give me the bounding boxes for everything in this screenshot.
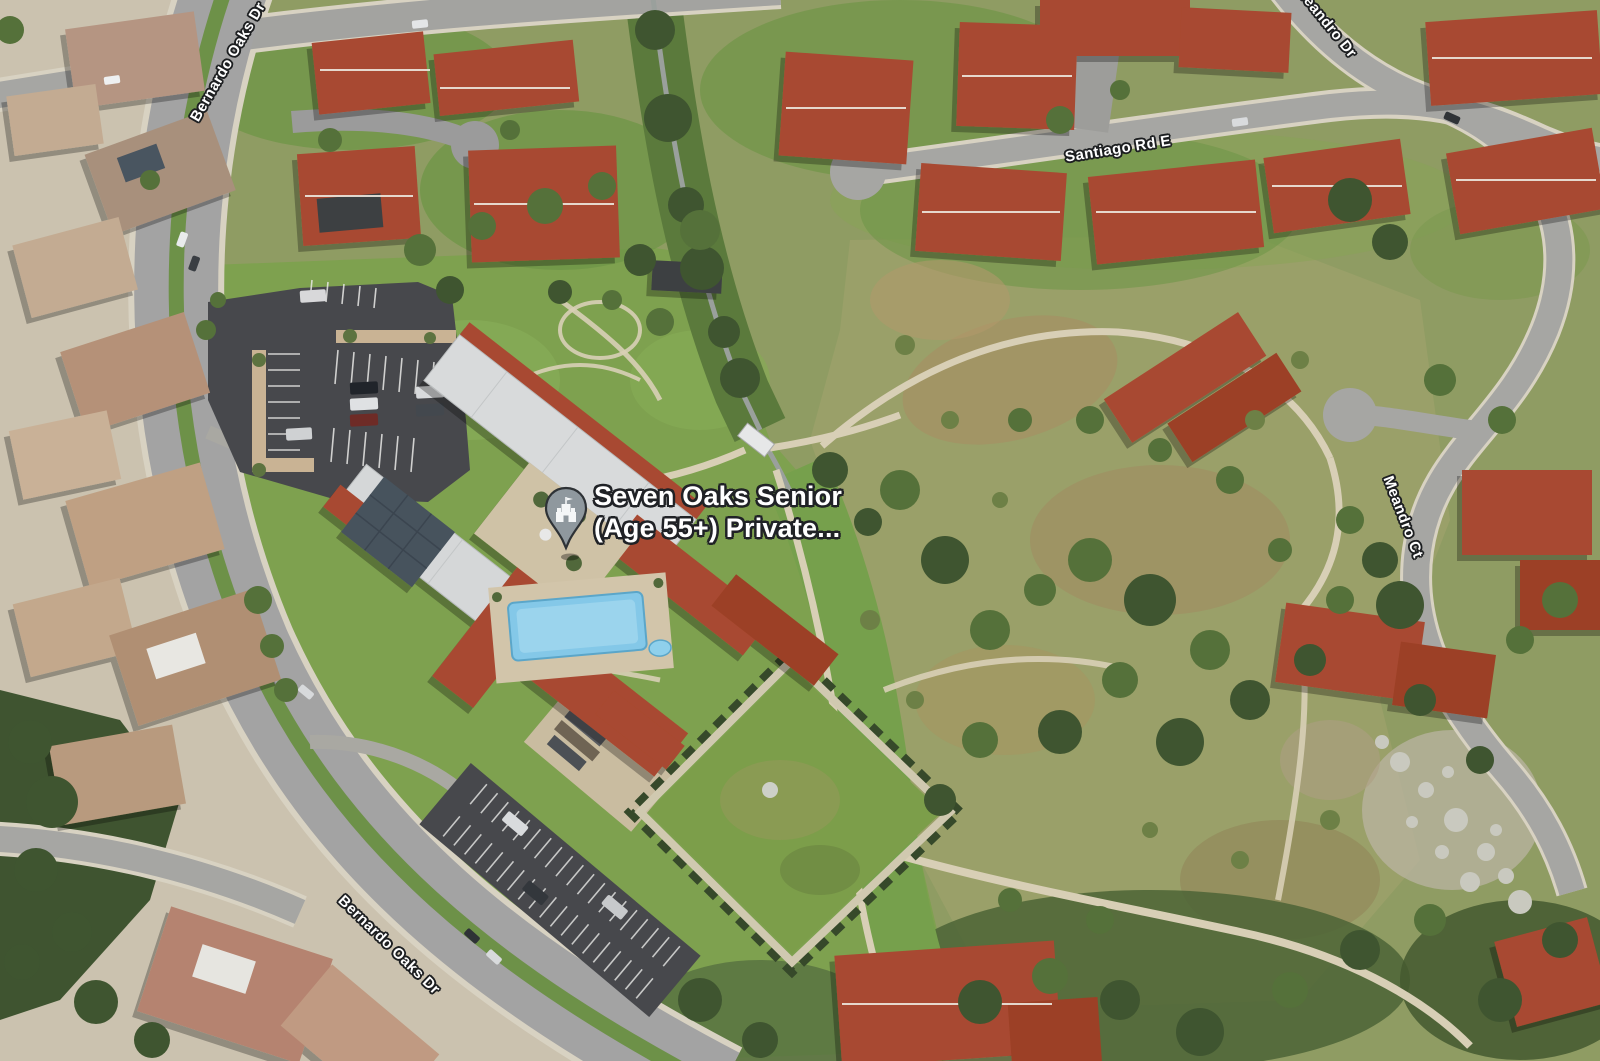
map-viewport[interactable]: Bernardo Oaks Dr Bernardo Oaks Dr Santia… — [0, 0, 1600, 1061]
pool-area — [488, 572, 674, 683]
place-name[interactable]: Seven Oaks Senior (Age 55+) Private... — [594, 480, 842, 544]
community-center-pin-icon[interactable] — [543, 485, 589, 555]
place-name-line2: (Age 55+) Private... — [594, 512, 842, 544]
main-parking-lot — [208, 280, 470, 502]
place-label-seven-oaks[interactable]: Seven Oaks Senior (Age 55+) Private... — [543, 480, 842, 555]
place-name-line1: Seven Oaks Senior — [594, 480, 842, 512]
